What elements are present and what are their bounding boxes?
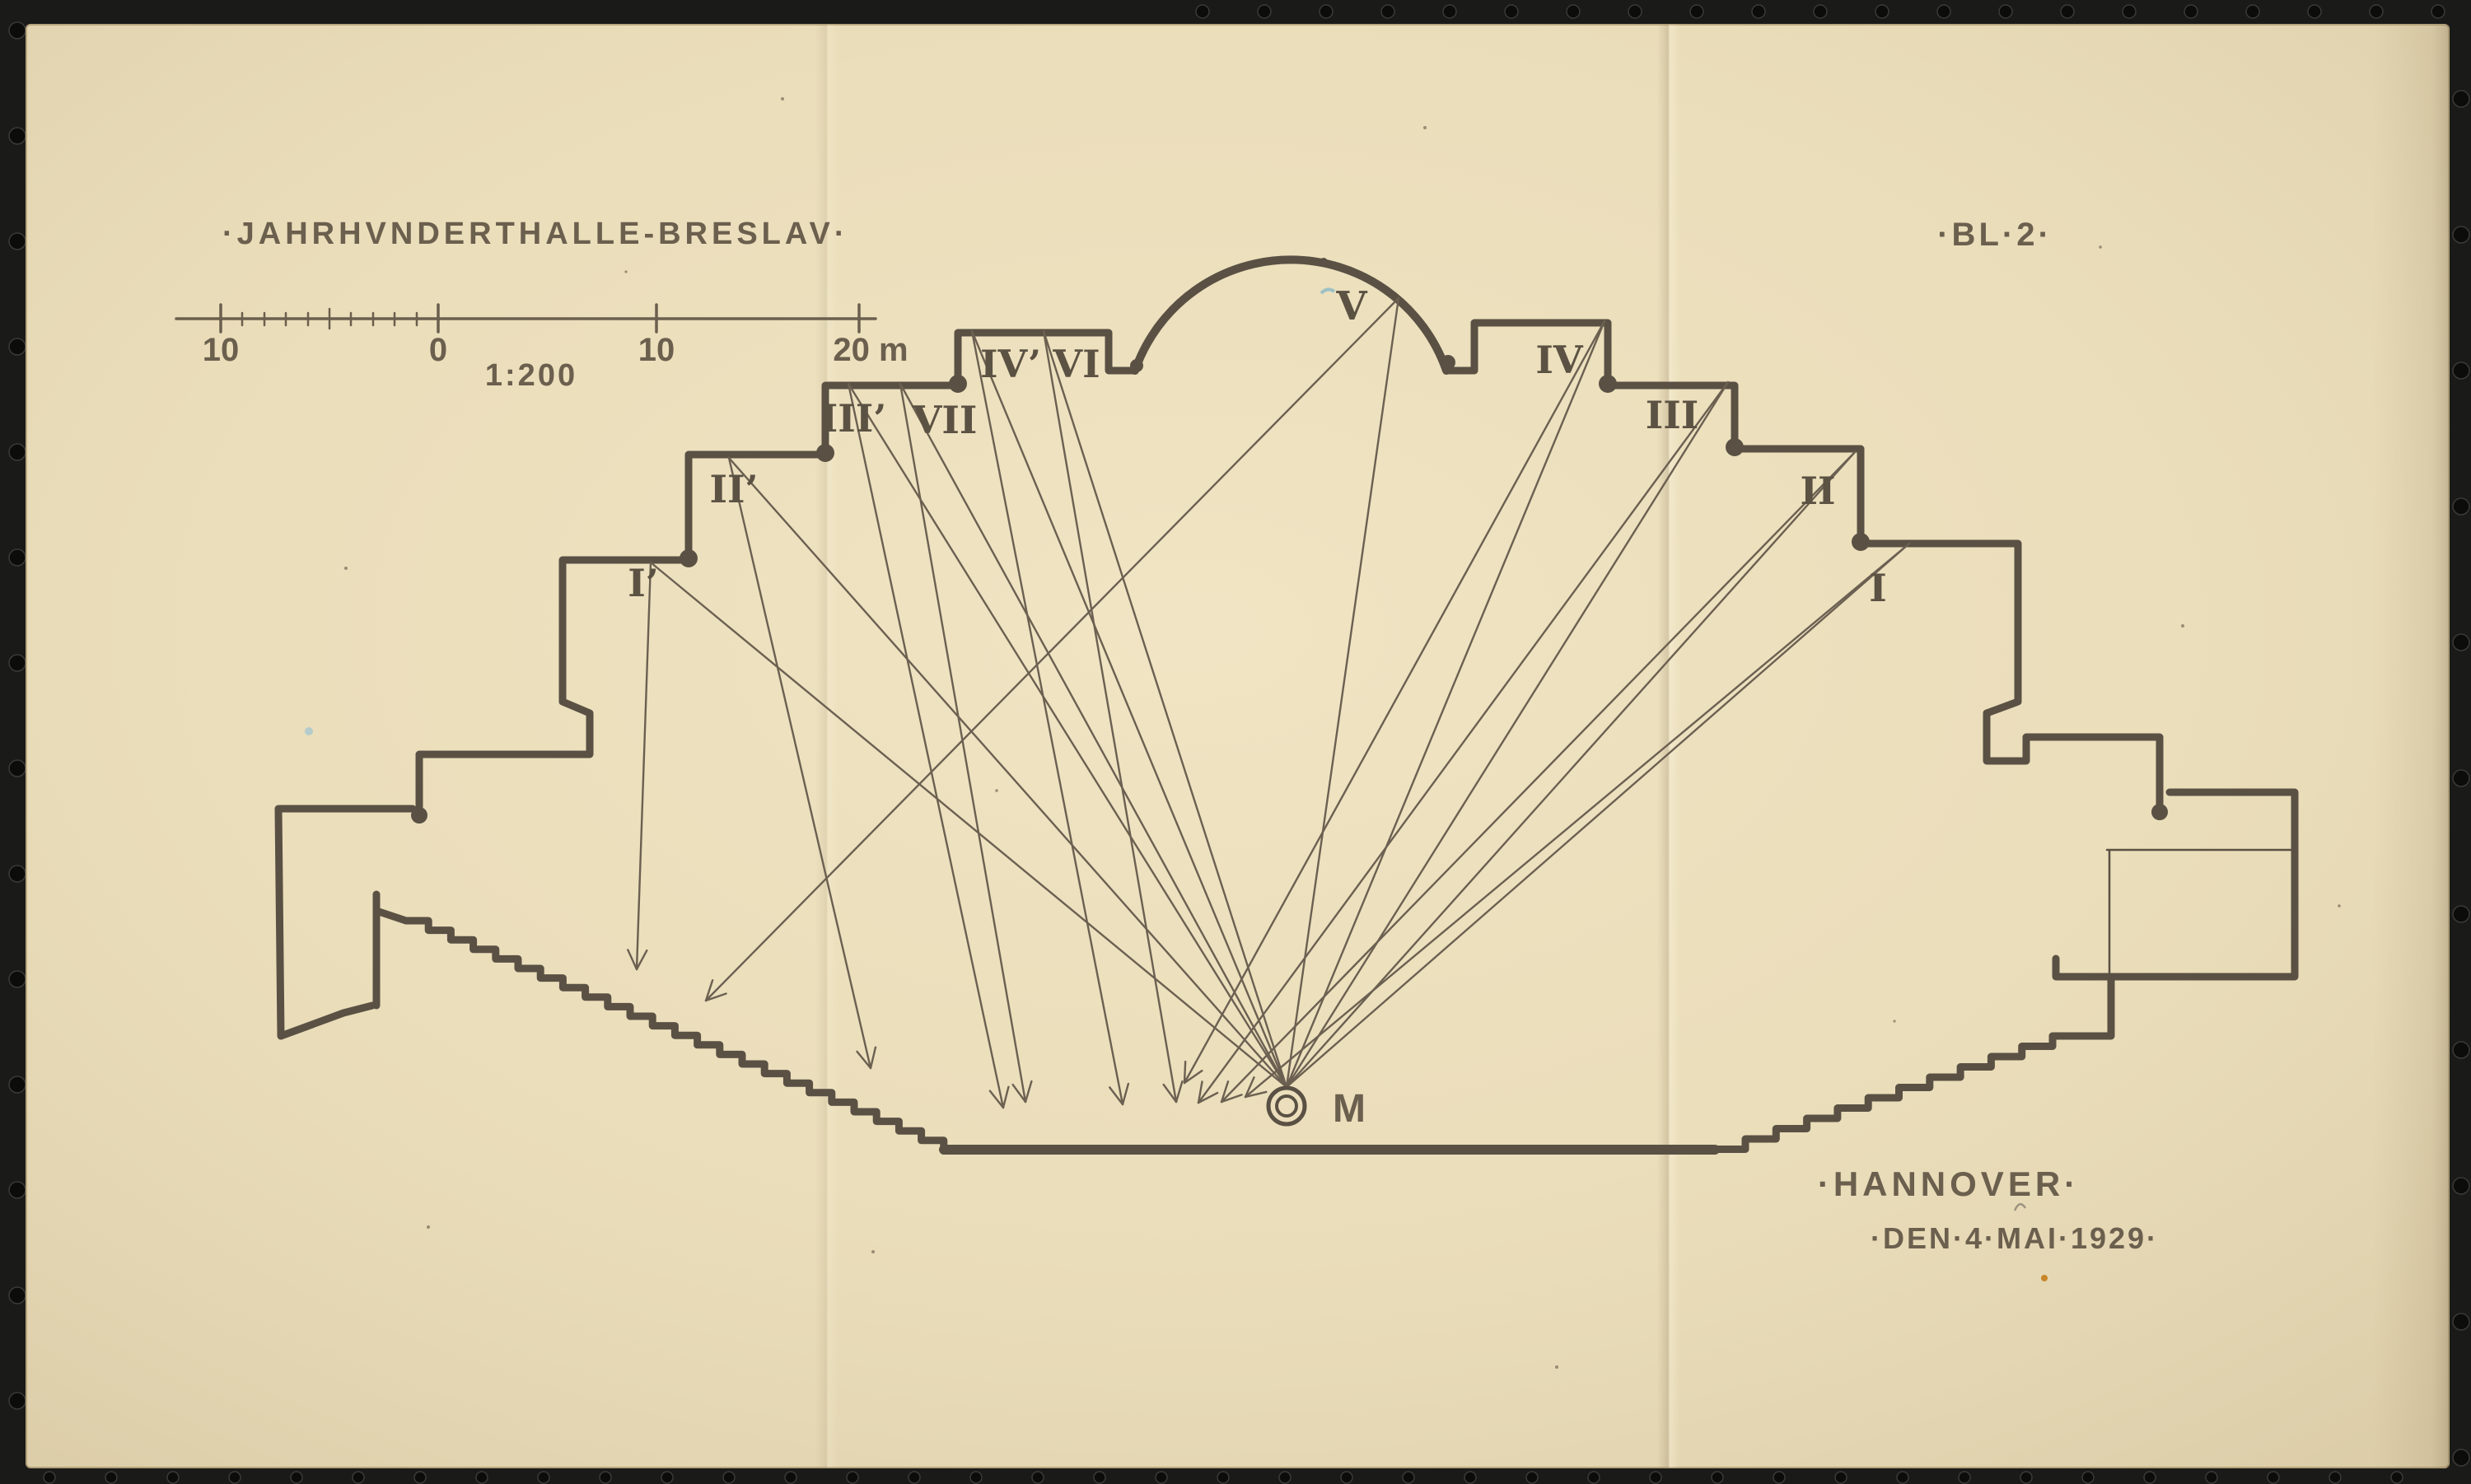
sprocket-hole: [414, 1472, 426, 1483]
sprocket-hole: [1464, 1472, 1476, 1483]
sprocket-hole: [1032, 1472, 1044, 1483]
sprocket-hole: [1814, 5, 1827, 18]
blue-smudge: [305, 727, 313, 735]
bay-label-5: V: [1335, 283, 1367, 329]
sprocket-hole: [2206, 1472, 2217, 1483]
sprocket-hole: [1341, 1472, 1352, 1483]
sprocket-hole: [2453, 498, 2469, 515]
sprocket-hole: [1752, 5, 1765, 18]
sprocket-hole: [9, 22, 26, 39]
sprocket-hole: [2453, 770, 2469, 786]
sprocket-hole: [1443, 5, 1456, 18]
sprocket-hole: [1937, 5, 1950, 18]
sprocket-hole: [2453, 634, 2469, 651]
sprocket-hole: [2246, 5, 2259, 18]
sprocket-hole: [1196, 5, 1209, 18]
sprocket-hole: [167, 1472, 179, 1483]
sprocket-hole: [661, 1472, 673, 1483]
sprocket-hole: [2184, 5, 2198, 18]
sprocket-hole: [2268, 1472, 2279, 1483]
bay-label-2: II: [1800, 469, 1835, 513]
sprocket-hole: [229, 1472, 241, 1483]
sprocket-hole: [2329, 1472, 2341, 1483]
sprocket-hole: [1897, 1472, 1908, 1483]
sprocket-hole: [970, 1472, 982, 1483]
sprocket-hole: [2453, 1042, 2469, 1058]
sprocket-hole: [1773, 1472, 1785, 1483]
bay-label-1p: I’: [628, 561, 659, 605]
sprocket-hole: [2453, 1178, 2469, 1194]
paper-edge-shadow: [2372, 25, 2449, 1468]
sprocket-hole: [1320, 5, 1333, 18]
sprocket-hole: [1279, 1472, 1291, 1483]
sprocket-hole: [1217, 1472, 1229, 1483]
bay-label-1: I: [1869, 566, 1887, 610]
sprocket-hole: [1959, 1472, 1970, 1483]
sprocket-hole: [2123, 5, 2136, 18]
bay-label-7: VII: [912, 398, 978, 442]
sprocket-hole: [9, 338, 26, 355]
sprocket-hole: [105, 1472, 117, 1483]
sprocket-hole: [1156, 1472, 1167, 1483]
sprocket-hole: [9, 549, 26, 566]
sprocket-hole: [9, 1287, 26, 1304]
bay-label-4: IV: [1535, 338, 1584, 382]
sprocket-hole: [1403, 1472, 1414, 1483]
sprocket-hole: [538, 1472, 549, 1483]
date-label: ·DEN·4·MAI·1929·: [1871, 1221, 2159, 1255]
bay-label-3: III: [1646, 393, 1699, 437]
scale-label-20m: 20 m: [833, 332, 908, 368]
sprocket-hole: [1381, 5, 1394, 18]
sprocket-hole: [1526, 1472, 1538, 1483]
sprocket-hole: [9, 1076, 26, 1093]
orange-speck: [2041, 1275, 2048, 1281]
sprocket-hole: [1258, 5, 1271, 18]
sprocket-hole: [2308, 5, 2321, 18]
sprocket-hole: [9, 1182, 26, 1198]
sprocket-hole: [9, 760, 26, 777]
sprocket-hole: [2453, 1314, 2469, 1330]
bay-label-3p: III’: [820, 396, 887, 441]
sprocket-hole: [1650, 1472, 1661, 1483]
sprocket-hole: [2431, 5, 2445, 18]
scanned-sheet: ·JAHRHVNDERTHALLE-BRESLAV· ·BL·2· 10 0 1…: [0, 0, 2471, 1484]
sprocket-hole: [1588, 1472, 1600, 1483]
sprocket-hole: [291, 1472, 302, 1483]
sprocket-hole: [1505, 5, 1518, 18]
sprocket-hole: [785, 1472, 796, 1483]
ray-line: [1184, 1062, 1185, 1083]
sprocket-hole: [2453, 906, 2469, 922]
drawing-canvas: ·JAHRHVNDERTHALLE-BRESLAV· ·BL·2· 10 0 1…: [0, 0, 2471, 1484]
sprocket-hole: [2061, 5, 2074, 18]
sprocket-hole: [9, 128, 26, 144]
sprocket-hole: [2453, 226, 2469, 243]
sprocket-hole: [9, 655, 26, 671]
bay-label-6: VI: [1052, 342, 1100, 386]
measure-point-label: M: [1333, 1087, 1366, 1131]
sprocket-hole: [2391, 1472, 2403, 1483]
sprocket-hole: [2020, 1472, 2032, 1483]
sprocket-hole: [476, 1472, 488, 1483]
sprocket-hole: [2453, 362, 2469, 379]
sprocket-hole: [2453, 91, 2469, 107]
sprocket-hole: [9, 444, 26, 460]
scale-label-left10: 10: [203, 332, 240, 368]
sprocket-hole: [2144, 1472, 2156, 1483]
sprocket-hole: [9, 866, 26, 882]
place-label: ·HANNOVER·: [1818, 1164, 2080, 1203]
scale-label-zero: 0: [429, 332, 447, 368]
sprocket-hole: [1567, 5, 1580, 18]
sprocket-hole: [1628, 5, 1642, 18]
sprocket-hole: [2453, 1449, 2469, 1466]
sprocket-hole: [2082, 1472, 2094, 1483]
sprocket-hole: [9, 233, 26, 250]
sprocket-hole: [353, 1472, 364, 1483]
sprocket-hole: [600, 1472, 611, 1483]
sheet-number: ·BL·2·: [1937, 217, 2053, 253]
scale-ratio: 1:200: [485, 358, 577, 393]
sprocket-hole: [1690, 5, 1703, 18]
bay-label-4p: IV’: [980, 342, 1041, 386]
sprocket-hole: [1999, 5, 2012, 18]
sprocket-hole: [909, 1472, 920, 1483]
sprocket-hole: [2370, 5, 2383, 18]
scale-label-right10: 10: [638, 332, 675, 368]
sprocket-hole: [1835, 1472, 1847, 1483]
sprocket-hole: [1712, 1472, 1723, 1483]
sprocket-hole: [9, 1393, 26, 1409]
bay-label-2p: II’: [709, 467, 758, 511]
sprocket-hole: [723, 1472, 735, 1483]
sprocket-hole: [847, 1472, 858, 1483]
sprocket-hole: [1094, 1472, 1105, 1483]
drawing-title: ·JAHRHVNDERTHALLE-BRESLAV·: [222, 217, 849, 251]
sprocket-hole: [1875, 5, 1889, 18]
sprocket-hole: [9, 971, 26, 987]
sprocket-hole: [44, 1472, 55, 1483]
